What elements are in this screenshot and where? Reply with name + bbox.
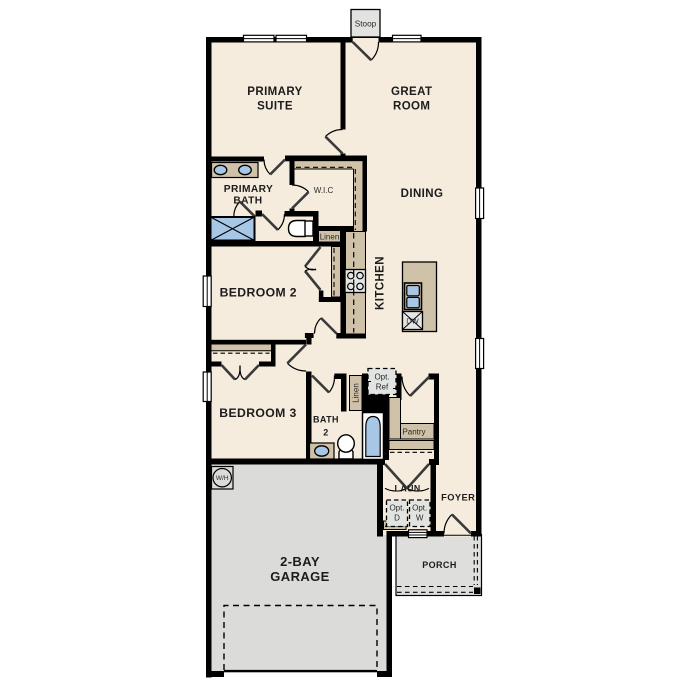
svg-text:DW: DW: [406, 317, 419, 326]
svg-text:Stoop: Stoop: [355, 20, 377, 29]
svg-text:Opt.: Opt.: [374, 373, 389, 382]
svg-text:Linen: Linen: [320, 233, 340, 242]
svg-text:D: D: [394, 514, 400, 523]
svg-text:DINING: DINING: [401, 188, 444, 200]
svg-text:Linen: Linen: [352, 383, 361, 403]
svg-text:2-BAY: 2-BAY: [280, 554, 320, 569]
svg-text:W: W: [416, 514, 424, 523]
svg-text:Pantry: Pantry: [402, 428, 425, 437]
svg-text:PRIMARY: PRIMARY: [247, 86, 302, 98]
svg-text:BEDROOM 2: BEDROOM 2: [220, 286, 297, 300]
svg-text:Opt.: Opt.: [412, 504, 427, 513]
svg-text:SUITE: SUITE: [257, 100, 293, 112]
svg-text:GREAT: GREAT: [391, 86, 432, 98]
svg-text:ROOM: ROOM: [393, 100, 430, 112]
svg-text:W/H: W/H: [216, 475, 229, 482]
svg-text:FOYER: FOYER: [441, 492, 475, 502]
svg-text:2: 2: [323, 427, 328, 437]
svg-text:BEDROOM 3: BEDROOM 3: [219, 406, 296, 420]
svg-text:Opt.: Opt.: [389, 504, 404, 513]
svg-text:PRIMARY: PRIMARY: [224, 184, 273, 195]
svg-text:W.I.C: W.I.C: [314, 186, 334, 195]
svg-text:PORCH: PORCH: [422, 560, 457, 570]
svg-text:BATH: BATH: [233, 196, 262, 207]
svg-text:BATH: BATH: [313, 415, 339, 425]
svg-text:GARAGE: GARAGE: [270, 569, 329, 584]
svg-text:Ref: Ref: [376, 383, 389, 392]
svg-text:LAUN.: LAUN.: [395, 484, 424, 494]
svg-text:KITCHEN: KITCHEN: [375, 256, 387, 310]
